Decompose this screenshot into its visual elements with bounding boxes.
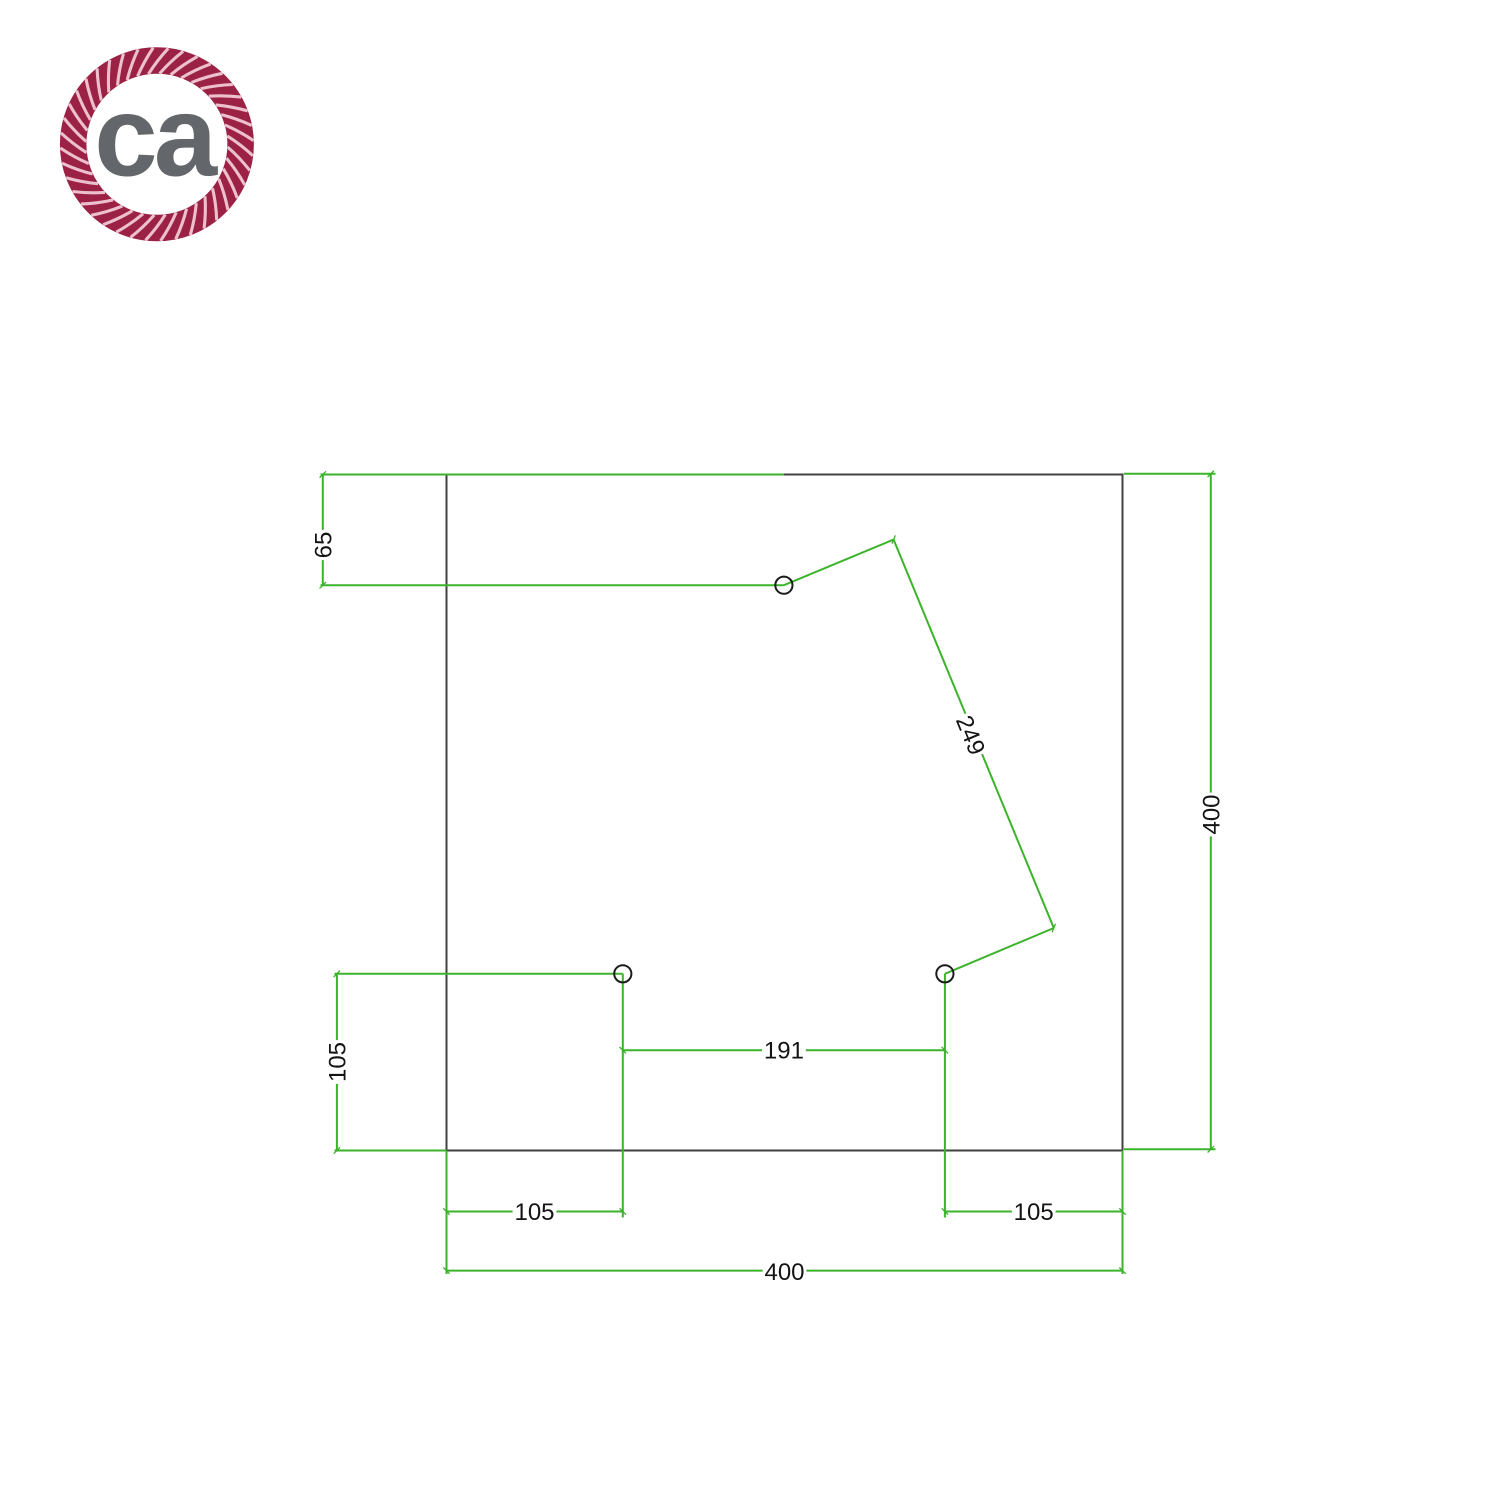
svg-text:105: 105 [324, 1042, 351, 1082]
svg-text:105: 105 [1014, 1199, 1054, 1226]
svg-text:191: 191 [764, 1038, 804, 1065]
svg-text:ca: ca [94, 74, 218, 201]
svg-text:65: 65 [310, 532, 337, 559]
svg-text:400: 400 [1198, 794, 1225, 834]
svg-text:400: 400 [764, 1259, 804, 1286]
svg-text:105: 105 [514, 1199, 554, 1226]
